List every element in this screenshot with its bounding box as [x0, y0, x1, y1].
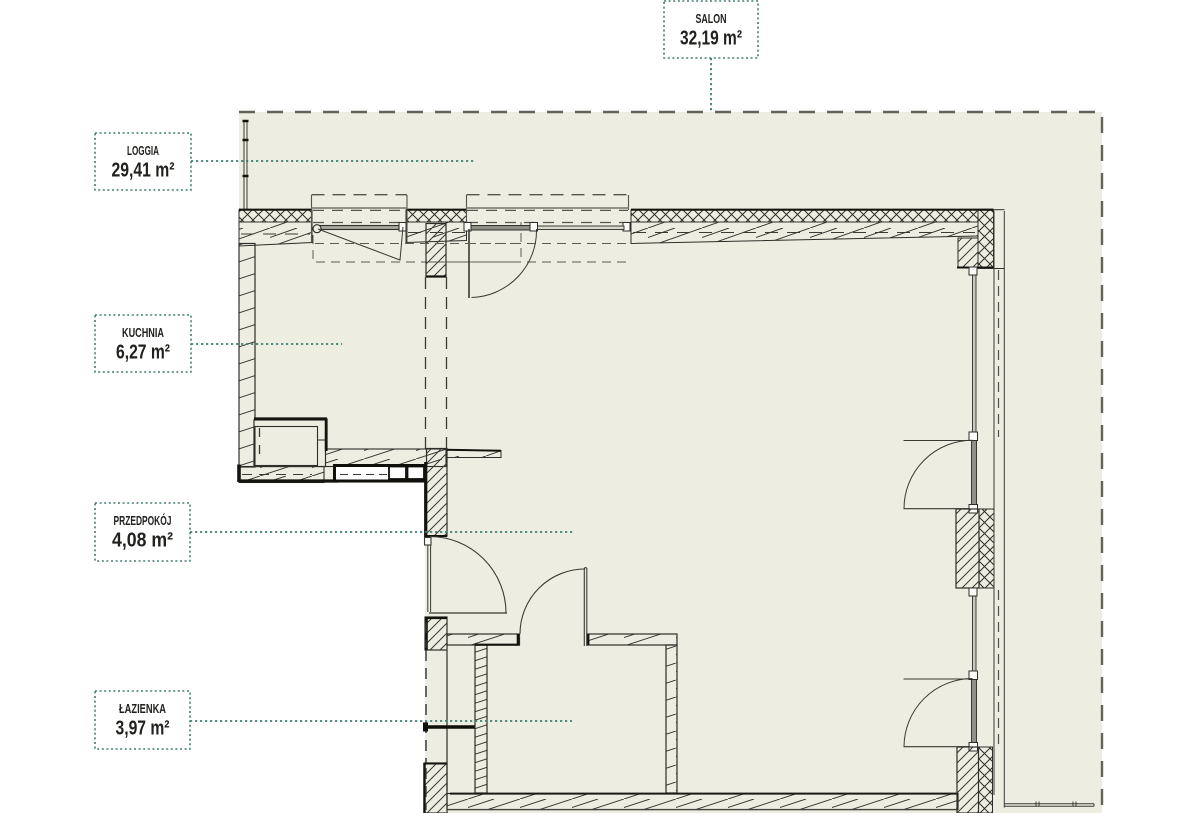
- svg-text:29,41 m²: 29,41 m²: [112, 160, 175, 182]
- svg-text:SALON: SALON: [696, 12, 727, 26]
- svg-text:3,97 m²: 3,97 m²: [116, 718, 170, 740]
- svg-text:KUCHNIA: KUCHNIA: [122, 326, 164, 340]
- svg-text:PRZEDPOKÓJ: PRZEDPOKÓJ: [114, 513, 172, 528]
- svg-text:6,27 m²: 6,27 m²: [116, 342, 170, 364]
- svg-text:32,19 m²: 32,19 m²: [680, 28, 742, 50]
- svg-text:ŁAZIENKA: ŁAZIENKA: [119, 702, 166, 716]
- svg-text:LOGGIA: LOGGIA: [127, 144, 159, 158]
- svg-text:4,08 m²: 4,08 m²: [112, 530, 173, 552]
